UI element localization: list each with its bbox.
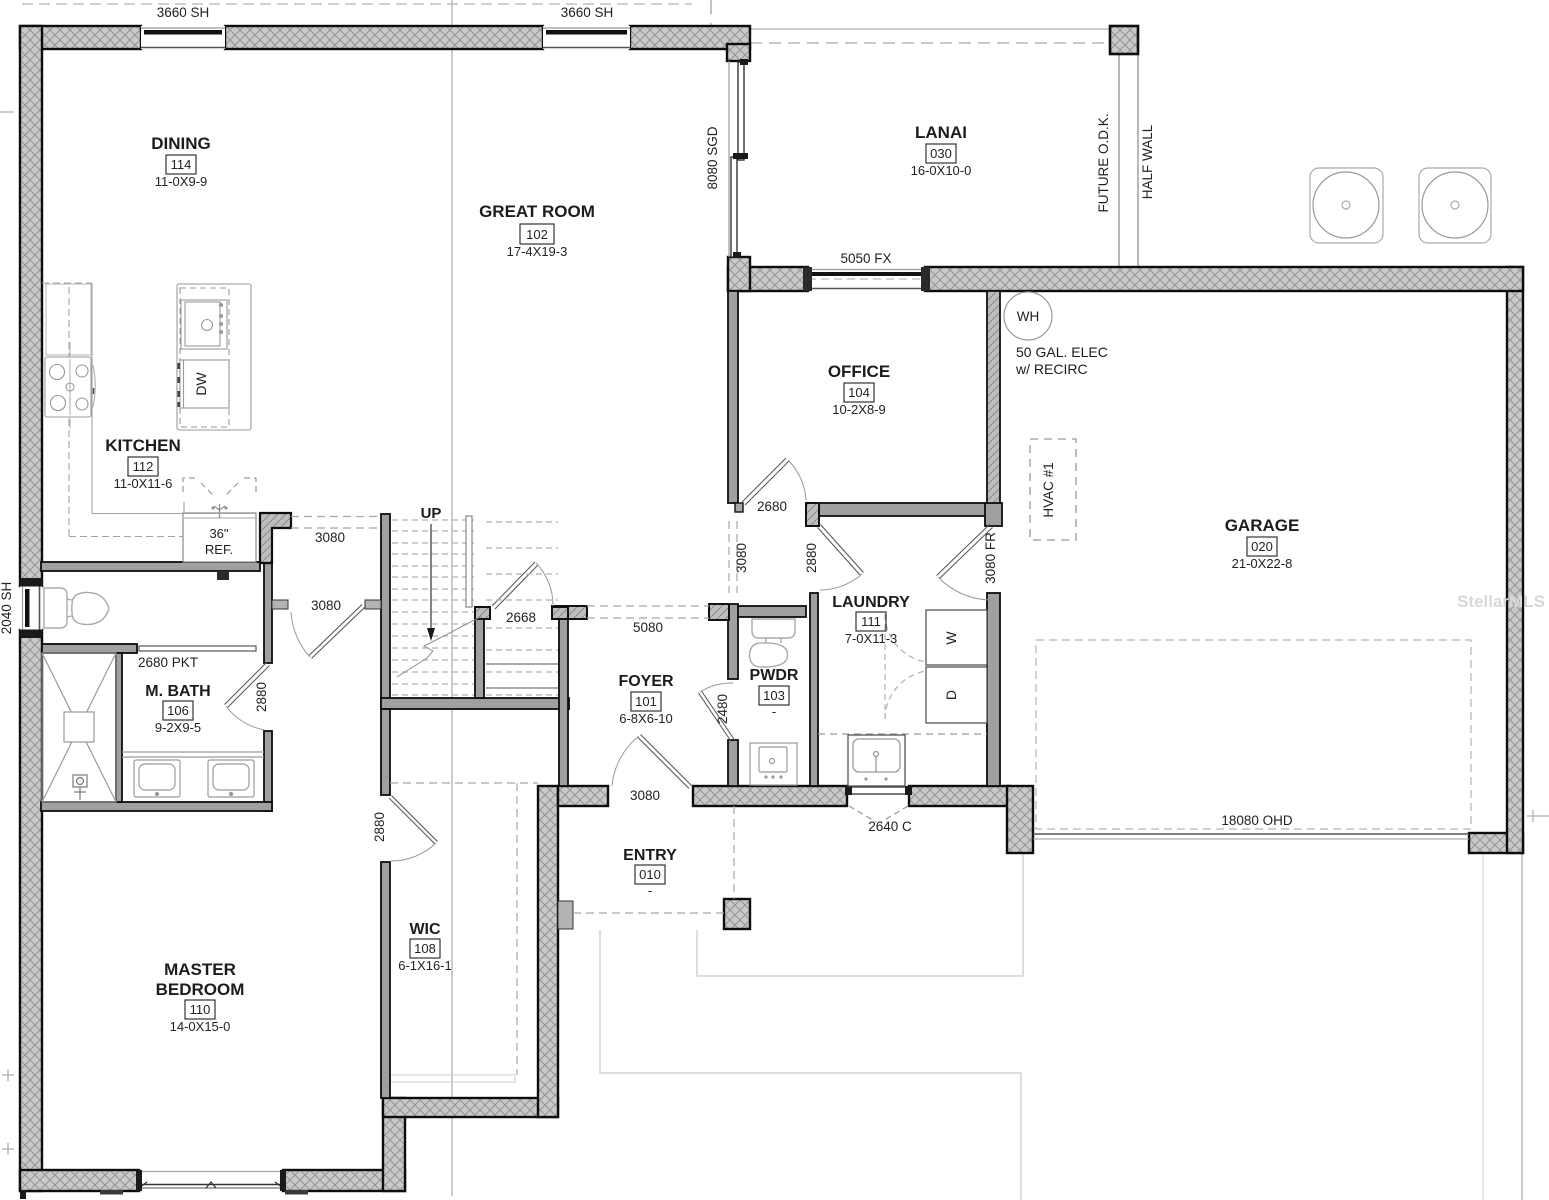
svg-text:3660 SH: 3660 SH: [157, 5, 210, 20]
svg-text:108: 108: [414, 941, 436, 956]
svg-text:FUTURE O.D.K.: FUTURE O.D.K.: [1096, 113, 1111, 212]
svg-text:50 GAL. ELEC: 50 GAL. ELEC: [1016, 344, 1108, 360]
svg-text:102: 102: [526, 227, 548, 242]
svg-text:GREAT ROOM: GREAT ROOM: [479, 202, 595, 221]
svg-text:101: 101: [635, 694, 657, 709]
svg-text:020: 020: [1251, 539, 1273, 554]
svg-text:2880: 2880: [254, 682, 269, 712]
svg-text:2668: 2668: [506, 610, 536, 625]
svg-text:LANAI: LANAI: [915, 123, 967, 142]
svg-text:106: 106: [167, 703, 189, 718]
svg-text:DINING: DINING: [151, 134, 211, 153]
svg-text:5050 FX: 5050 FX: [840, 251, 891, 266]
svg-text:D: D: [943, 690, 959, 700]
svg-text:StellarMLS: StellarMLS: [1457, 592, 1545, 611]
svg-text:2640 C: 2640 C: [868, 819, 912, 834]
svg-text:2680 PKT: 2680 PKT: [138, 655, 198, 670]
svg-text:HALF WALL: HALF WALL: [1140, 124, 1155, 199]
svg-text:111: 111: [861, 614, 881, 629]
svg-text:6-1X16-1: 6-1X16-1: [398, 958, 451, 973]
svg-text:16-0X10-0: 16-0X10-0: [911, 163, 972, 178]
svg-text:14-0X15-0: 14-0X15-0: [170, 1019, 231, 1034]
svg-text:11-0X11-6: 11-0X11-6: [114, 476, 173, 491]
svg-text:KITCHEN: KITCHEN: [105, 436, 181, 455]
svg-text:3080 FR: 3080 FR: [983, 532, 998, 584]
svg-text:010: 010: [639, 867, 661, 882]
svg-text:2680: 2680: [757, 499, 787, 514]
svg-text:114: 114: [171, 157, 192, 172]
svg-text:WIC: WIC: [409, 921, 441, 938]
svg-text:2040 SH: 2040 SH: [0, 582, 14, 635]
svg-text:103: 103: [763, 688, 785, 703]
svg-text:2880: 2880: [372, 812, 387, 842]
svg-text:OFFICE: OFFICE: [828, 362, 890, 381]
svg-text:21-0X22-8: 21-0X22-8: [1232, 556, 1293, 571]
svg-text:2880: 2880: [804, 543, 819, 573]
svg-text:3660 SH: 3660 SH: [561, 5, 614, 20]
svg-text:112: 112: [133, 459, 154, 474]
svg-text:REF.: REF.: [205, 542, 233, 557]
svg-text:-: -: [772, 704, 776, 719]
svg-text:10-2X8-9: 10-2X8-9: [832, 402, 885, 417]
svg-text:6-8X6-10: 6-8X6-10: [619, 711, 672, 726]
svg-text:DW: DW: [193, 372, 209, 396]
svg-text:HVAC #1: HVAC #1: [1041, 462, 1056, 517]
svg-text:w/ RECIRC: w/ RECIRC: [1015, 361, 1088, 377]
svg-text:ENTRY: ENTRY: [623, 847, 677, 864]
svg-text:030: 030: [930, 146, 952, 161]
svg-text:WH: WH: [1017, 309, 1040, 324]
svg-text:BEDROOM: BEDROOM: [156, 980, 245, 999]
svg-text:GARAGE: GARAGE: [1225, 516, 1300, 535]
svg-text:5080: 5080: [633, 620, 663, 635]
svg-text:M. BATH: M. BATH: [145, 683, 210, 700]
svg-text:FOYER: FOYER: [618, 673, 674, 690]
svg-text:18080 OHD: 18080 OHD: [1221, 813, 1293, 828]
svg-text:11-0X9-9: 11-0X9-9: [155, 174, 208, 189]
svg-text:UP: UP: [421, 505, 442, 522]
svg-text:2480: 2480: [715, 694, 730, 724]
svg-text:3080: 3080: [311, 598, 341, 613]
svg-text:3080: 3080: [734, 543, 749, 573]
svg-text:LAUNDRY: LAUNDRY: [832, 594, 910, 611]
svg-text:3080: 3080: [315, 530, 345, 545]
svg-text:-: -: [648, 883, 652, 898]
svg-text:W: W: [943, 631, 959, 645]
svg-text:17-4X19-3: 17-4X19-3: [507, 244, 568, 259]
svg-text:104: 104: [848, 385, 870, 400]
svg-text:110: 110: [190, 1002, 211, 1017]
svg-text:PWDR: PWDR: [750, 667, 799, 684]
svg-text:9-2X9-5: 9-2X9-5: [155, 720, 201, 735]
svg-text:MASTER: MASTER: [164, 960, 236, 979]
svg-text:8080 SGD: 8080 SGD: [705, 126, 720, 189]
svg-text:3080: 3080: [630, 788, 660, 803]
svg-text:36": 36": [209, 526, 228, 541]
svg-text:7-0X11-3: 7-0X11-3: [845, 631, 898, 646]
